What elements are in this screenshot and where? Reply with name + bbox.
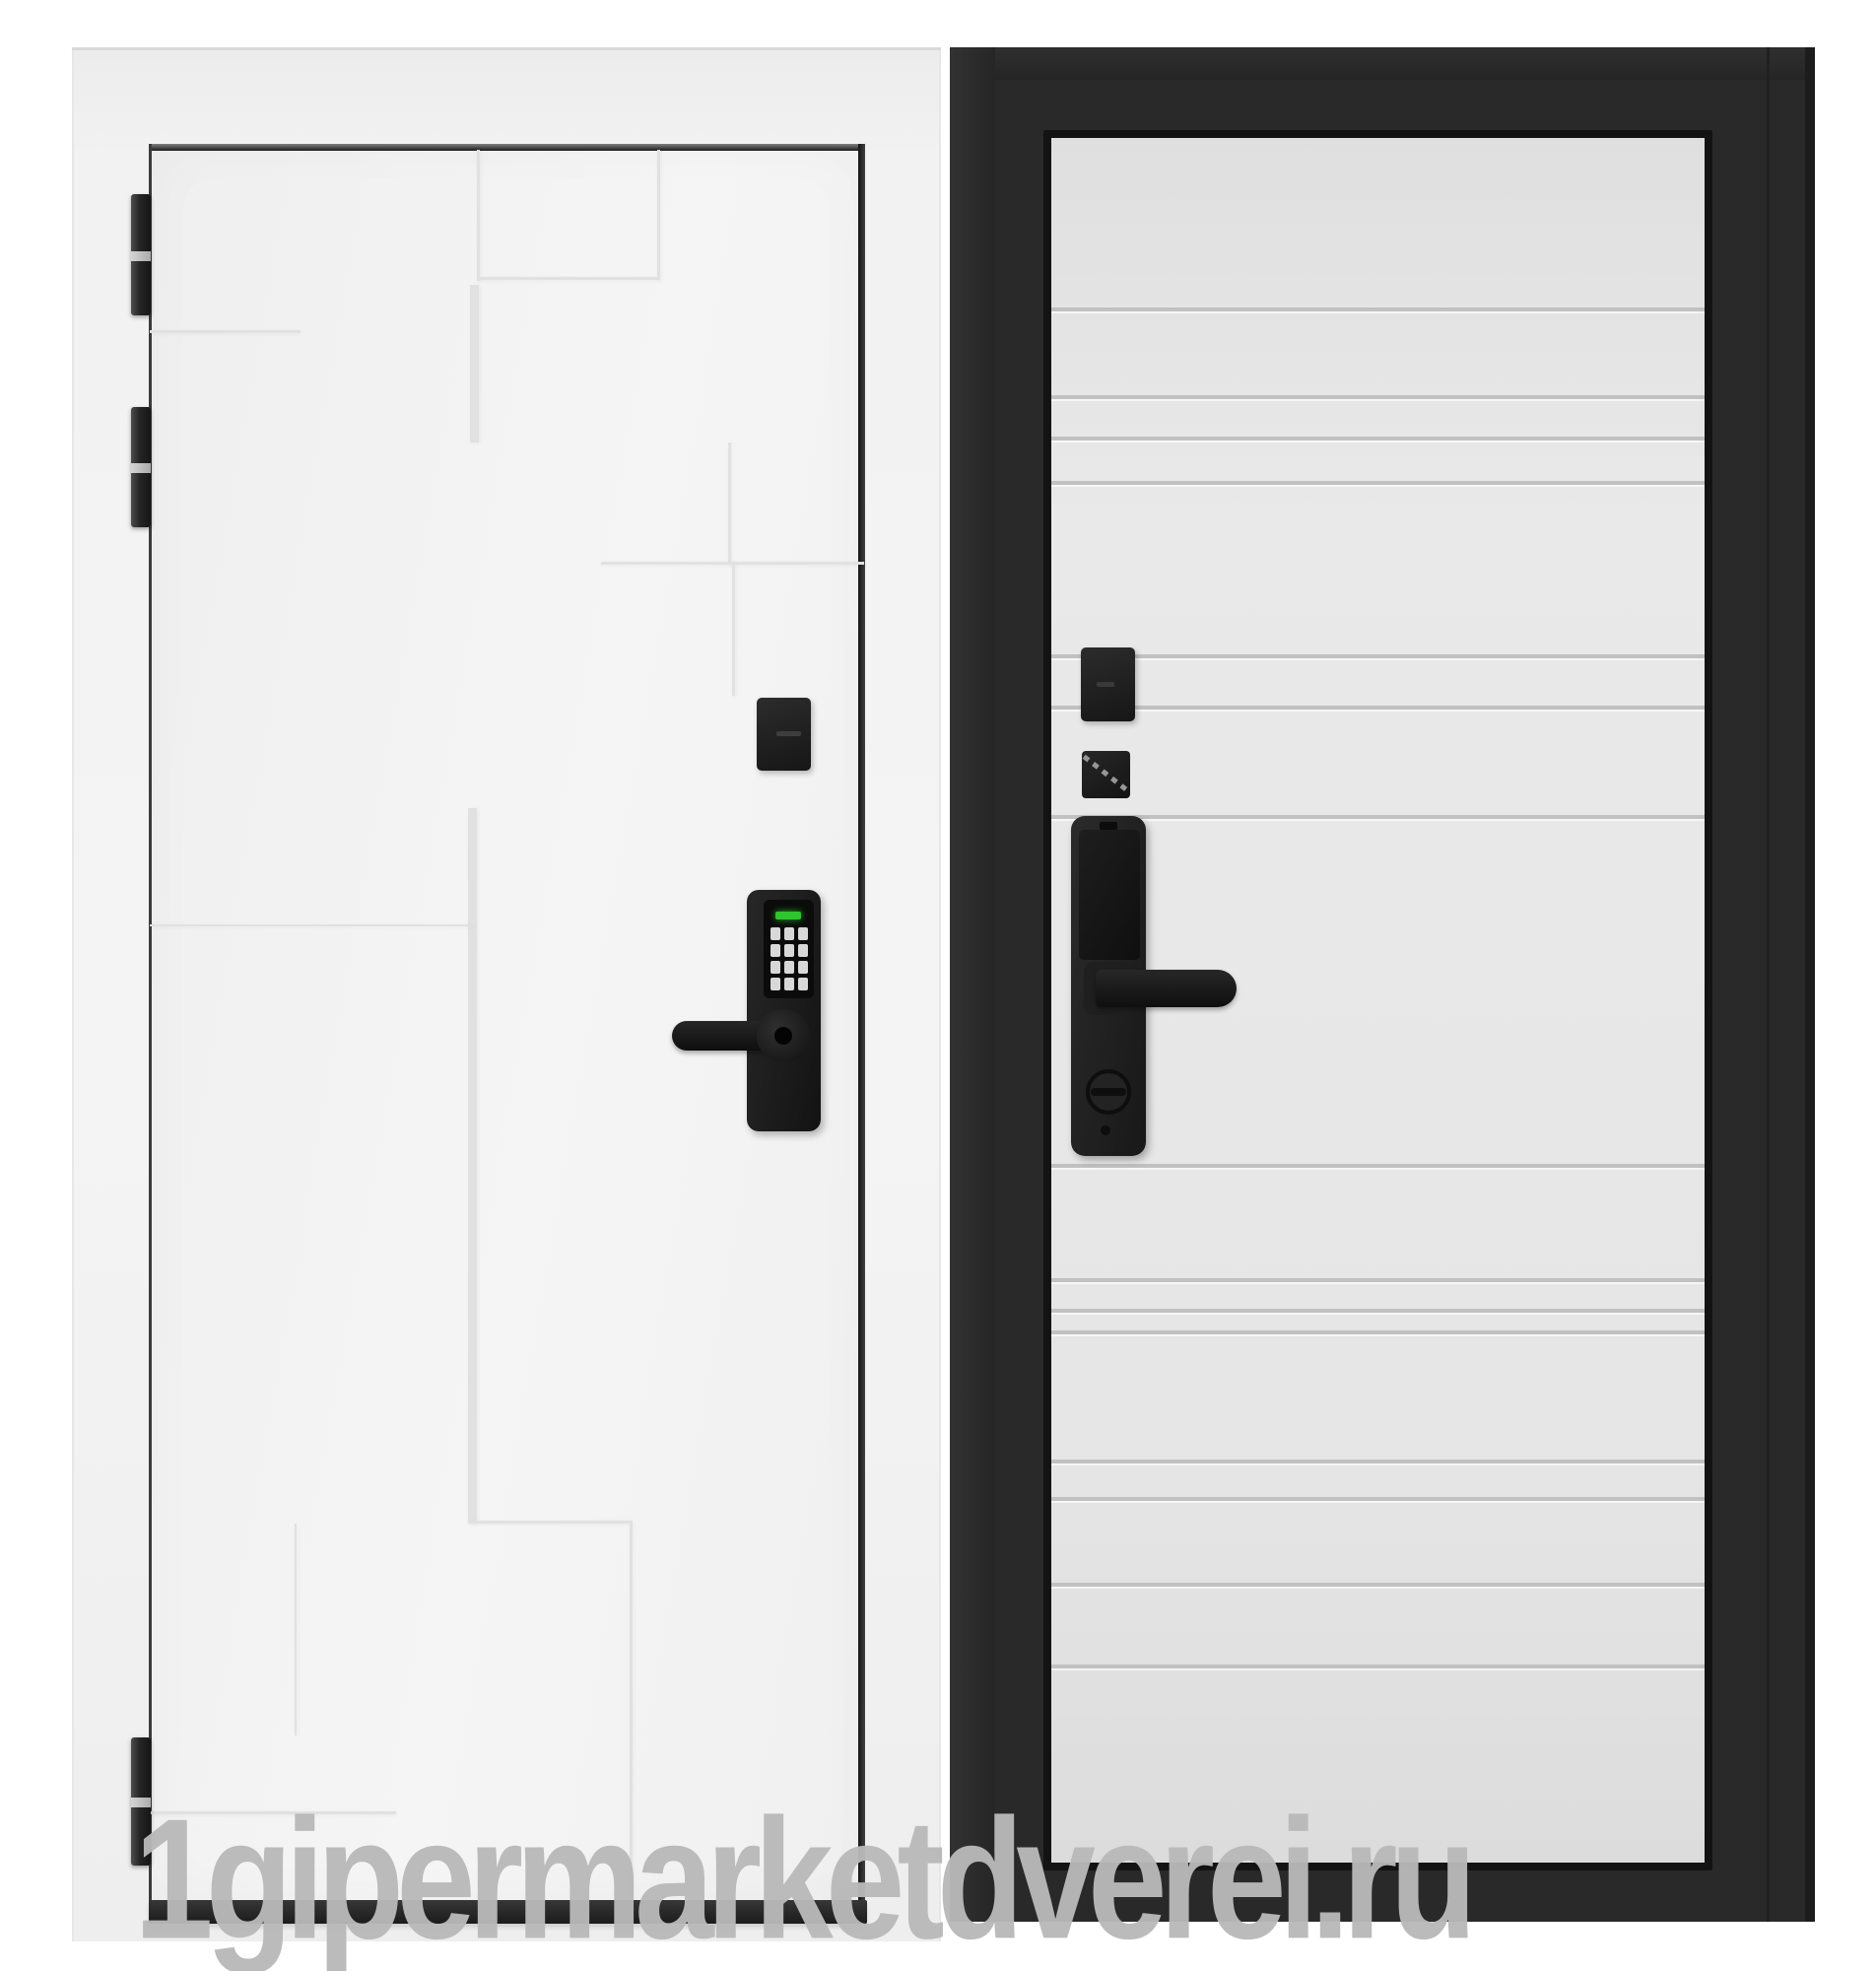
keypad-key (784, 978, 794, 990)
right-door-card-reader (1081, 647, 1135, 721)
left-door-card-reader (757, 698, 811, 771)
keypad-key (798, 944, 808, 957)
keypad-key (784, 927, 794, 940)
panel-groove (1051, 1497, 1705, 1501)
keypad-key (798, 927, 808, 940)
panel-groove (1051, 1309, 1705, 1313)
keypad-key (770, 978, 780, 990)
card-reader-slot (776, 731, 801, 736)
watermark-text: 1gipermarketdverei.ru (134, 1794, 1469, 1965)
right-door-lock-inner-panel (1079, 830, 1140, 960)
keypad-key (798, 978, 808, 990)
smart-lock-keypad-keys (770, 927, 808, 990)
panel-groove (1051, 437, 1705, 441)
right-door-frame-top-band (950, 47, 1815, 80)
milling-line (657, 150, 660, 280)
hinge-band (131, 463, 151, 473)
right-door-keyhole-cover (1082, 751, 1130, 798)
left-door-handle-spindle (774, 1027, 792, 1045)
panel-groove (1051, 395, 1705, 399)
right-door-lock-top-slot (1100, 822, 1117, 830)
milling-line (470, 285, 479, 442)
milling-line (150, 924, 475, 926)
panel-groove (1051, 654, 1705, 658)
panel-groove (1051, 481, 1705, 485)
panel-groove (1051, 1164, 1705, 1168)
panel-groove (1051, 706, 1705, 710)
panel-groove (1051, 815, 1705, 819)
right-door-frame-ridge (1767, 47, 1770, 1922)
keypad-key (784, 944, 794, 957)
product-image-door-front-and-back: 1gipermarketdverei.ru (0, 0, 1876, 1971)
keypad-key (798, 961, 808, 974)
right-door-lock-screw-dot (1101, 1125, 1110, 1135)
milling-line (150, 330, 301, 333)
keypad-key (770, 961, 780, 974)
milling-line (295, 1524, 297, 1735)
right-door-frame-left-band (950, 47, 995, 1922)
door-hinge (131, 407, 151, 527)
panel-groove (1051, 1665, 1705, 1668)
hinge-band (131, 251, 151, 261)
keypad-key (770, 944, 780, 957)
panel-groove (1051, 1330, 1705, 1334)
door-hinge (131, 194, 151, 315)
left-door-leaf-right-edge (858, 144, 865, 1902)
milling-line (477, 150, 480, 281)
keypad-key (770, 927, 780, 940)
milling-line (477, 277, 660, 280)
panel-groove (1051, 1460, 1705, 1463)
panel-groove (1051, 307, 1705, 311)
thumbturn-bar (1091, 1088, 1126, 1096)
left-door-leaf-top-edge (149, 144, 864, 151)
right-door-frame-right-edge (1805, 47, 1815, 1922)
panel-groove (1051, 1278, 1705, 1282)
right-door-handle (1096, 970, 1237, 1007)
milling-line (468, 808, 477, 1523)
card-reader-slot (1097, 682, 1114, 687)
smart-lock-led-indicator (775, 912, 801, 919)
keypad-key (784, 961, 794, 974)
milling-line (728, 442, 731, 565)
milling-line (732, 565, 735, 696)
panel-groove (1051, 1583, 1705, 1587)
milling-line (468, 1521, 633, 1524)
keyhole-cover-stripe (1083, 755, 1130, 794)
